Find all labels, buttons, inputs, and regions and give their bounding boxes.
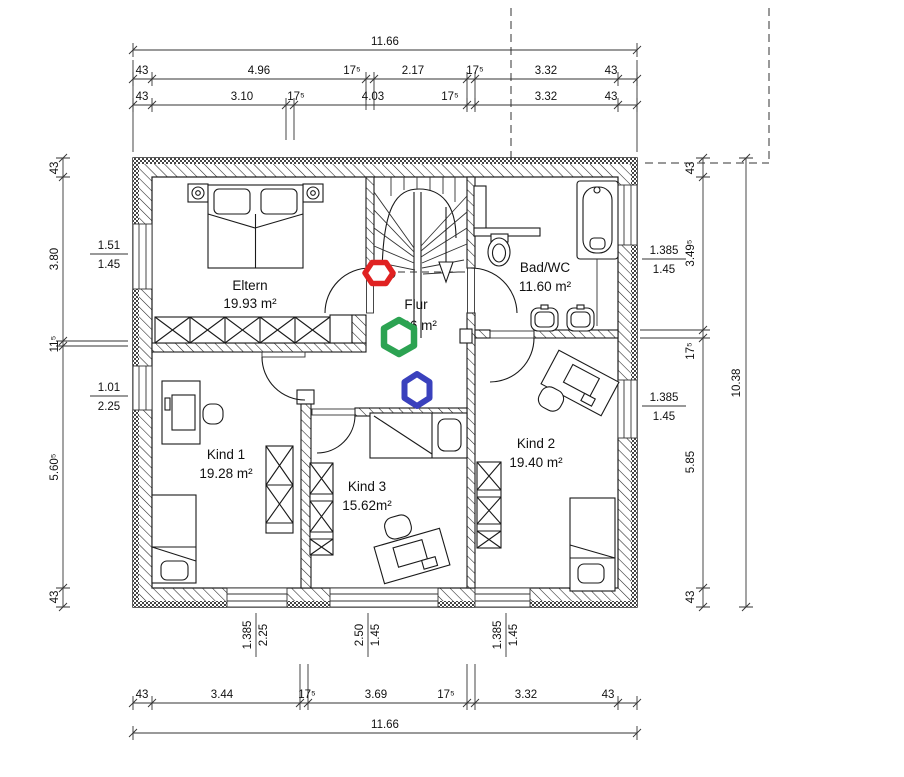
svg-text:1.45: 1.45 <box>653 264 675 276</box>
room-area-kind3: 15.62m² <box>342 498 392 513</box>
wardrobe-kind3 <box>310 463 333 555</box>
wall-end-block <box>330 315 352 343</box>
sink <box>531 305 558 331</box>
dim-right-window-1: 1.385 1.45 <box>642 245 686 276</box>
wall-bad-kind2-left <box>475 330 490 338</box>
dim-top-r1-3: 2.17 <box>402 65 424 77</box>
marker-green-hexagon[interactable] <box>384 320 414 354</box>
svg-text:1.385: 1.385 <box>650 392 679 404</box>
svg-text:2.50: 2.50 <box>354 624 366 646</box>
pillow <box>161 561 188 580</box>
dim-top-overall: 11.66 <box>371 36 399 48</box>
dim-left-2: 11⁵ <box>49 335 61 352</box>
pillow <box>578 564 604 583</box>
svg-text:1.45: 1.45 <box>508 624 520 646</box>
dim-right-0: 43 <box>685 162 697 175</box>
dim-bottom-window-1: 1.385 2.25 <box>242 613 270 657</box>
bed-kind3 <box>370 413 467 458</box>
svg-text:1.45: 1.45 <box>653 411 675 423</box>
wardrobe-kind1 <box>266 446 293 533</box>
room-label-kind3: Kind 3 <box>348 479 386 494</box>
room-label-eltern: Eltern <box>232 278 267 293</box>
window-kind2-bottom <box>475 588 530 607</box>
dim-top-r2-6: 43 <box>605 91 618 103</box>
dim-left-window-2: 1.01 2.25 <box>90 382 128 413</box>
dim-bot-6: 43 <box>602 689 615 701</box>
dim-right: 43 3.49⁵ 17⁵ 5.85 43 10.38 1.385 1.45 1.… <box>640 154 753 611</box>
door-stop-symbol <box>460 329 472 343</box>
svg-text:1.51: 1.51 <box>98 240 120 252</box>
dim-right-3: 5.85 <box>685 451 697 473</box>
dim-left-1: 3.80 <box>49 248 61 270</box>
room-area-kind2: 19.40 m² <box>509 455 563 470</box>
dim-top-r1-5: 3.32 <box>535 65 557 77</box>
wardrobe-eltern <box>155 317 330 343</box>
svg-text:1.385: 1.385 <box>492 621 504 650</box>
dim-top-r1-2: 17⁵ <box>343 65 361 77</box>
wall-end-hatch <box>352 315 366 343</box>
dim-left-3: 5.60⁵ <box>49 453 61 480</box>
section-reference-lines <box>511 8 769 163</box>
window-eltern-left <box>133 224 152 289</box>
marker-blue-hexagon[interactable] <box>405 374 430 406</box>
svg-text:1.385: 1.385 <box>650 245 679 257</box>
dim-left: 43 3.80 11⁵ 5.60⁵ 43 1.51 1.45 1.01 2.25 <box>49 154 128 611</box>
bathtub <box>577 181 618 259</box>
bed-kind2 <box>570 498 615 591</box>
svg-text:1.01: 1.01 <box>98 382 120 394</box>
wall-stair-left <box>366 177 374 268</box>
window-kind1-left <box>133 366 152 410</box>
floor-plan-sheet: Eltern 19.93 m² Flur 9.36 m² Bad/WC 11.6… <box>0 0 904 777</box>
svg-text:2.25: 2.25 <box>98 401 120 413</box>
room-label-kind1: Kind 1 <box>207 447 245 462</box>
faucet-icon <box>594 187 600 193</box>
svg-text:1.45: 1.45 <box>98 259 120 271</box>
svg-text:1.45: 1.45 <box>370 624 382 646</box>
marker-red-hexagon[interactable] <box>365 263 393 284</box>
dim-bottom-window-3: 1.385 1.45 <box>492 613 520 657</box>
room-label-flur: Flur <box>404 297 428 312</box>
room-area-eltern: 19.93 m² <box>223 296 277 311</box>
dim-right-2: 17⁵ <box>685 342 697 360</box>
dim-right-1: 3.49⁵ <box>685 239 697 266</box>
dim-top-r2-3: 4.03 <box>362 91 384 103</box>
dim-top: 11.66 43 4.96 17⁵ 2.17 17⁵ 3.32 43 43 3.… <box>129 36 641 152</box>
dim-bot-1: 3.44 <box>211 689 234 701</box>
dim-bot-3: 3.69 <box>365 689 387 701</box>
pillow <box>438 419 461 451</box>
room-label-kind2: Kind 2 <box>517 436 555 451</box>
dim-bot-0: 43 <box>136 689 149 701</box>
dim-right-window-2: 1.385 1.45 <box>642 392 686 423</box>
dim-top-r1-6: 43 <box>605 65 618 77</box>
dim-top-r2-0: 43 <box>136 91 149 103</box>
chair <box>203 404 223 424</box>
dim-top-r2-5: 3.32 <box>535 91 557 103</box>
dim-bot-5: 3.32 <box>515 689 537 701</box>
window-bad-right <box>618 185 637 245</box>
room-label-bad: Bad/WC <box>520 260 571 275</box>
dim-top-r1-1: 4.96 <box>248 65 270 77</box>
dim-left-4: 43 <box>49 591 61 604</box>
wardrobe-kind2 <box>477 462 501 548</box>
dim-bottom-overall: 11.66 <box>371 719 399 731</box>
window-kind2-right <box>618 380 637 438</box>
room-area-kind1: 19.28 m² <box>199 466 253 481</box>
dim-right-overall: 10.38 <box>731 369 743 398</box>
dim-bot-2: 17⁵ <box>298 689 316 701</box>
room-area-bad: 11.60 m² <box>519 279 572 294</box>
dim-top-r1-0: 43 <box>136 65 149 77</box>
double-bed <box>208 185 303 268</box>
bed-kind1 <box>152 495 196 583</box>
svg-text:1.385: 1.385 <box>242 621 254 650</box>
pillow <box>214 189 250 214</box>
wall-cap-kind1 <box>297 390 314 404</box>
dim-left-window-1: 1.51 1.45 <box>90 240 128 271</box>
svg-text:2.25: 2.25 <box>258 624 270 646</box>
dim-top-r2-4: 17⁵ <box>441 91 459 103</box>
wall-eltern-kind1 <box>152 343 366 352</box>
pillow <box>261 189 297 214</box>
floor-plan-drawing: Eltern 19.93 m² Flur 9.36 m² Bad/WC 11.6… <box>0 0 904 777</box>
dim-top-r2-1: 3.10 <box>231 91 253 103</box>
sink <box>567 305 594 331</box>
dim-top-r2-2: 17⁵ <box>287 91 305 103</box>
window-kind3-bottom <box>330 588 438 607</box>
window-kind1-bottom <box>227 588 287 607</box>
wall-kind3-kind2 <box>467 313 475 588</box>
dim-right-4: 43 <box>685 591 697 604</box>
dim-top-r1-4: 17⁵ <box>466 65 484 77</box>
dim-bottom-window-2: 2.50 1.45 <box>354 613 382 657</box>
dim-left-0: 43 <box>49 162 61 175</box>
dim-bot-4: 17⁵ <box>437 689 455 701</box>
dim-bottom: 43 3.44 17⁵ 3.69 17⁵ 3.32 43 11.66 1.385… <box>129 613 641 740</box>
